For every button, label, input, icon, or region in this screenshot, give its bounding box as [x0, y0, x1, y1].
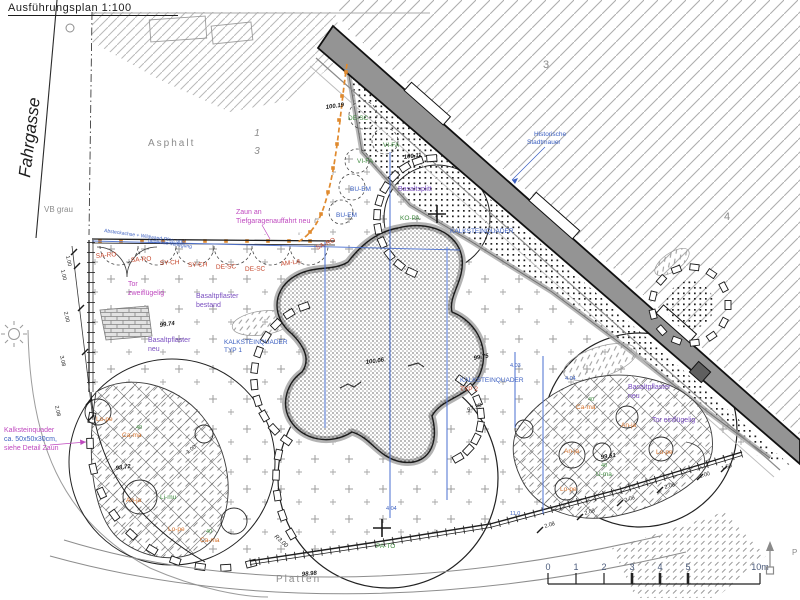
plan-label: KO-PA	[400, 215, 420, 222]
plan-label: 40	[601, 463, 607, 469]
limestone-block	[690, 339, 700, 346]
plan-label: VI-FA	[383, 142, 400, 149]
scale-tick-label: 0	[545, 562, 550, 572]
plan-label: Tor einflügelig	[652, 417, 695, 424]
scale-tick-label: 1	[573, 562, 578, 572]
plan-label: 2.08	[544, 521, 556, 530]
plan-label: 1	[254, 128, 260, 139]
plan-label: 4.03	[510, 363, 521, 369]
plan-label: An-ja	[126, 497, 142, 504]
plan-label: VB grau	[44, 205, 73, 214]
plan-label: Asphalt	[148, 138, 195, 149]
scale-tick-label: 4	[657, 562, 662, 572]
plan-label: 100.19	[325, 102, 345, 111]
plan-label: BU-EM	[350, 186, 371, 193]
plan-label: 40	[136, 425, 142, 431]
plan-label: PA-TO	[376, 543, 395, 550]
plan-label: Lo-pe	[656, 449, 673, 456]
plan-label: 40	[206, 529, 212, 535]
dim-tick	[74, 263, 80, 269]
bed-grid-line	[80, 572, 250, 600]
plan-label: 11.0	[510, 511, 520, 517]
plan-label: 1.00	[59, 269, 67, 281]
plan-label: bestand	[196, 302, 221, 309]
plan-label: Basaltsplitt	[398, 186, 432, 193]
plan-label: neu	[148, 346, 160, 353]
plan-label: Basaltpflaster	[628, 384, 671, 391]
plan-label: 2.00	[62, 311, 70, 323]
plan-label: 40	[588, 397, 594, 403]
limestone-block	[690, 264, 700, 271]
limestone-block	[274, 449, 282, 460]
plan-label: Ca-ma	[576, 404, 596, 411]
plan-label: An-ja	[564, 448, 580, 455]
scale-tick-label: 2	[601, 562, 606, 572]
plan-label: VI-FA	[357, 158, 374, 165]
plan-label: U-ma	[596, 471, 612, 478]
bed-grid-line	[80, 578, 250, 600]
plan-title: Ausführungsplan 1:100	[8, 2, 178, 16]
plan-label: 1.50	[721, 463, 733, 472]
plan-label: TYP 1	[224, 347, 242, 354]
plan-label: Basaltpflaster	[196, 293, 239, 300]
plan-label: 3.08	[58, 355, 66, 367]
scale-tick-label: 5	[685, 562, 690, 572]
plan-label: An-ja	[621, 422, 637, 429]
plan-label: 4.04	[386, 506, 397, 512]
bed-grid-line	[80, 556, 250, 600]
plan-label: Lo-pe	[168, 526, 185, 533]
plan-label: SA-RO	[131, 256, 152, 264]
sun-symbol	[1, 321, 27, 347]
limestone-block	[476, 421, 484, 432]
plan-label: P	[792, 548, 797, 557]
limestone-block	[427, 155, 438, 162]
dim-tick	[537, 527, 543, 533]
plan-label: siehe Detail Zaun	[4, 445, 59, 452]
plan-label: Li-mu	[160, 494, 177, 501]
plan-label: KALKSTEINQUADER	[460, 377, 524, 384]
plan-label: KALKSTEINQUADER	[450, 228, 514, 235]
plan-label: Ca-ma	[200, 537, 220, 544]
scale-tick-label: 3	[629, 562, 634, 572]
plan-label: neu	[628, 393, 640, 400]
limestone-block	[221, 564, 231, 571]
plan-label: DE-SC	[245, 266, 266, 273]
plan-label: Ca-ma	[122, 432, 142, 439]
plan-label: TYP 2	[460, 386, 478, 393]
plan-label: BU-EM	[336, 212, 357, 219]
plan-label: Tiefgaragenauffahrt neu	[236, 218, 310, 225]
plan-label: Tor	[128, 281, 138, 288]
limestone-block	[87, 438, 94, 448]
limestone-block	[251, 363, 259, 374]
plan-label: 3	[543, 59, 549, 71]
plan-label: Lo-pe	[560, 486, 577, 493]
limestone-block	[251, 379, 258, 390]
limestone-block	[273, 490, 281, 501]
plan-canvas: 01234510m FahrgasseVB grauAsphalt1334His…	[0, 0, 800, 600]
bed-grid-line	[80, 594, 250, 600]
limestone-block	[273, 470, 280, 480]
plan-label: Basaltpflaster	[148, 337, 191, 344]
plan-label: 1.00	[64, 255, 72, 267]
limestone-block	[374, 209, 381, 219]
plan-label: Kalksteinquader	[4, 427, 55, 434]
plan-label: DE-SC	[216, 263, 237, 271]
plan-label: 3	[254, 146, 260, 157]
plan-label: SY-CH	[160, 259, 180, 267]
site-plan-drawing: 01234510m FahrgasseVB grauAsphalt1334His…	[0, 0, 800, 600]
stone-circle	[666, 281, 714, 329]
plan-label: 2.08	[53, 405, 61, 417]
plan-label: Lo-pe	[96, 416, 113, 423]
plan-label: Fahrgasse	[15, 96, 44, 178]
plan-label: Historische	[534, 131, 567, 138]
plan-label: zweiflügelig	[128, 290, 164, 297]
plan-label: Zaun an	[236, 209, 262, 216]
plan-label: Stadtmauer	[527, 139, 561, 146]
dim-tick	[71, 249, 77, 255]
plan-label: 4.04	[565, 376, 576, 382]
plan-label: ca. 50x50x30cm,	[4, 436, 57, 443]
limestone-block	[374, 223, 382, 234]
plan-label: 4	[724, 211, 730, 223]
plan-label: SY-CH	[188, 261, 208, 269]
plan-label: KALKSTEINQUADER	[224, 339, 288, 346]
plan-label: DE-SC	[348, 115, 369, 122]
limestone-block	[725, 301, 731, 310]
